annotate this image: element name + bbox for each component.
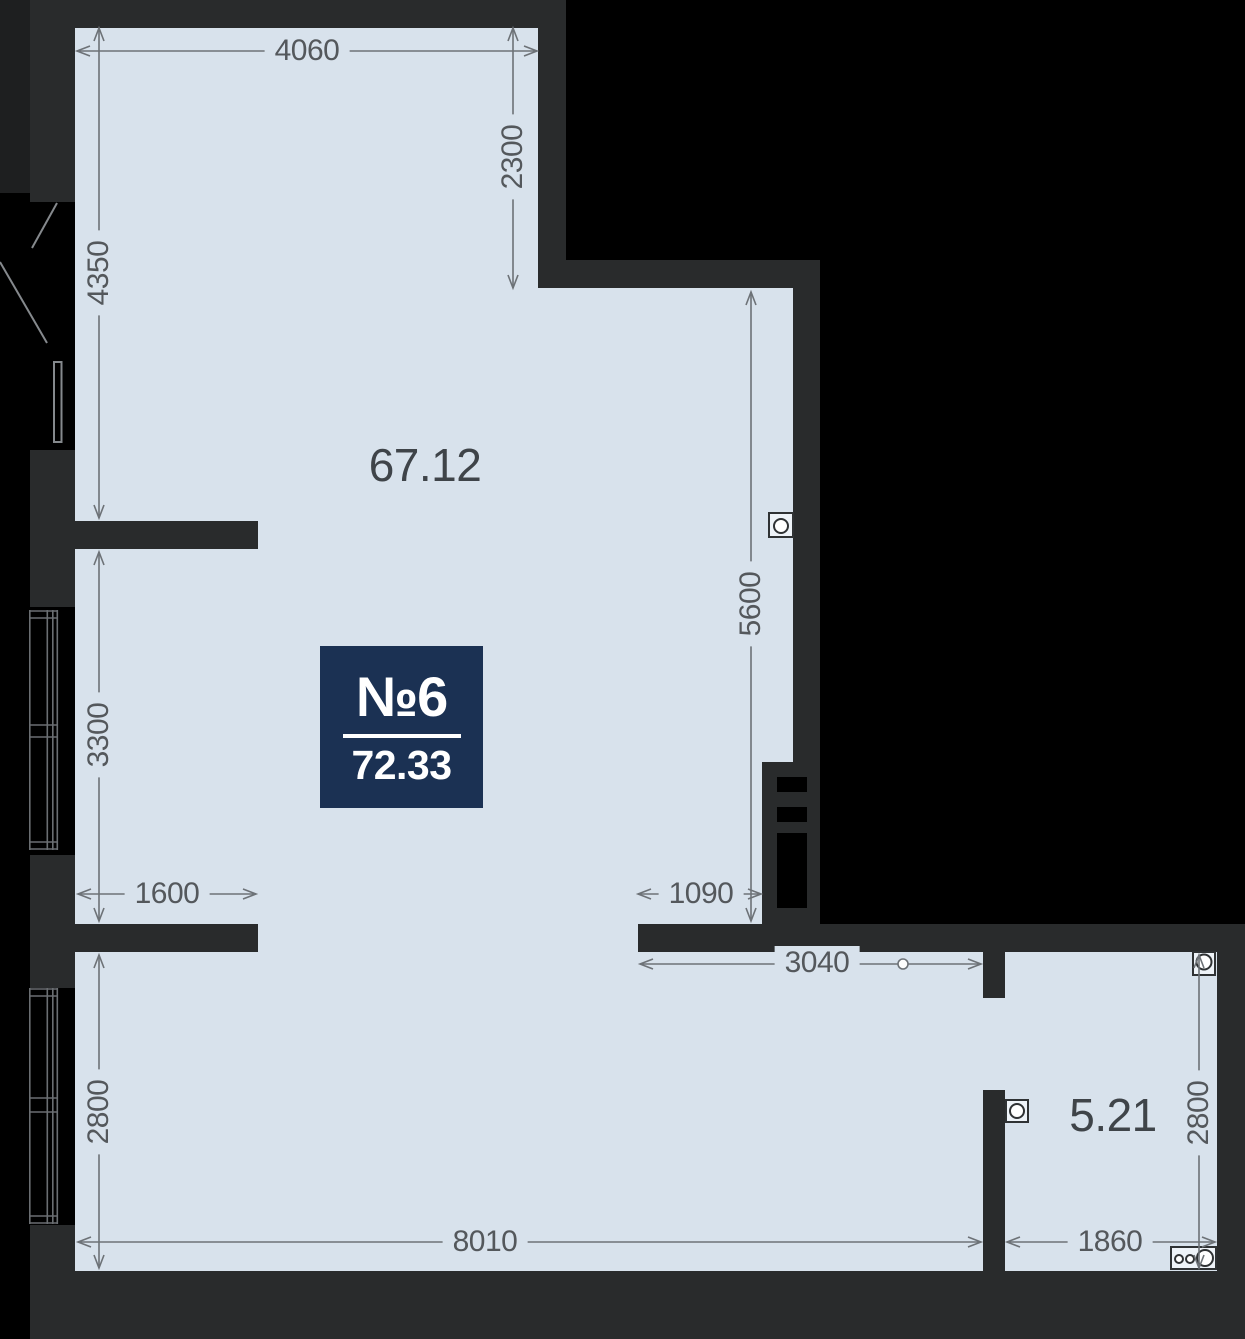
outlet-icon-bottom-right <box>1171 1247 1216 1269</box>
window-icon-2 <box>30 988 58 1224</box>
dim-upper-step-height: 2300 <box>496 115 530 200</box>
dim-middle-opening-width: 1090 <box>659 877 744 911</box>
unit-badge: №6 72.33 <box>320 646 483 808</box>
socket-icon-small-room <box>1006 1100 1028 1122</box>
window-icon-1 <box>30 610 58 850</box>
dimension-lines <box>77 28 1215 1268</box>
unit-number: №6 <box>356 669 448 725</box>
dim-right-height-upper: 5600 <box>734 562 768 647</box>
dim-top-width: 4060 <box>265 34 350 68</box>
unit-total-area: 72.33 <box>351 745 451 786</box>
socket-icon-upper-right <box>769 513 793 537</box>
dim-middle-lower-width: 3040 <box>775 946 860 980</box>
dim-left-height-middle: 3300 <box>82 693 116 778</box>
badge-divider <box>343 734 461 738</box>
dim-left-height-lower: 2800 <box>82 1070 116 1155</box>
room-area-small: 5.21 <box>1069 1092 1157 1138</box>
dim-bottom-width: 8010 <box>443 1225 528 1259</box>
door-swing-icon <box>0 203 62 442</box>
dim-left-stub-width: 1600 <box>125 877 210 911</box>
room-area-main: 67.12 <box>369 442 482 488</box>
floor-plan: 4060 2300 4350 3300 2800 1600 1090 5600 … <box>0 0 1245 1339</box>
dim-left-height-upper: 4350 <box>82 231 116 316</box>
dim-small-room-height: 2800 <box>1182 1071 1216 1156</box>
plan-linework <box>0 0 1245 1339</box>
dim-small-room-width: 1860 <box>1068 1225 1153 1259</box>
